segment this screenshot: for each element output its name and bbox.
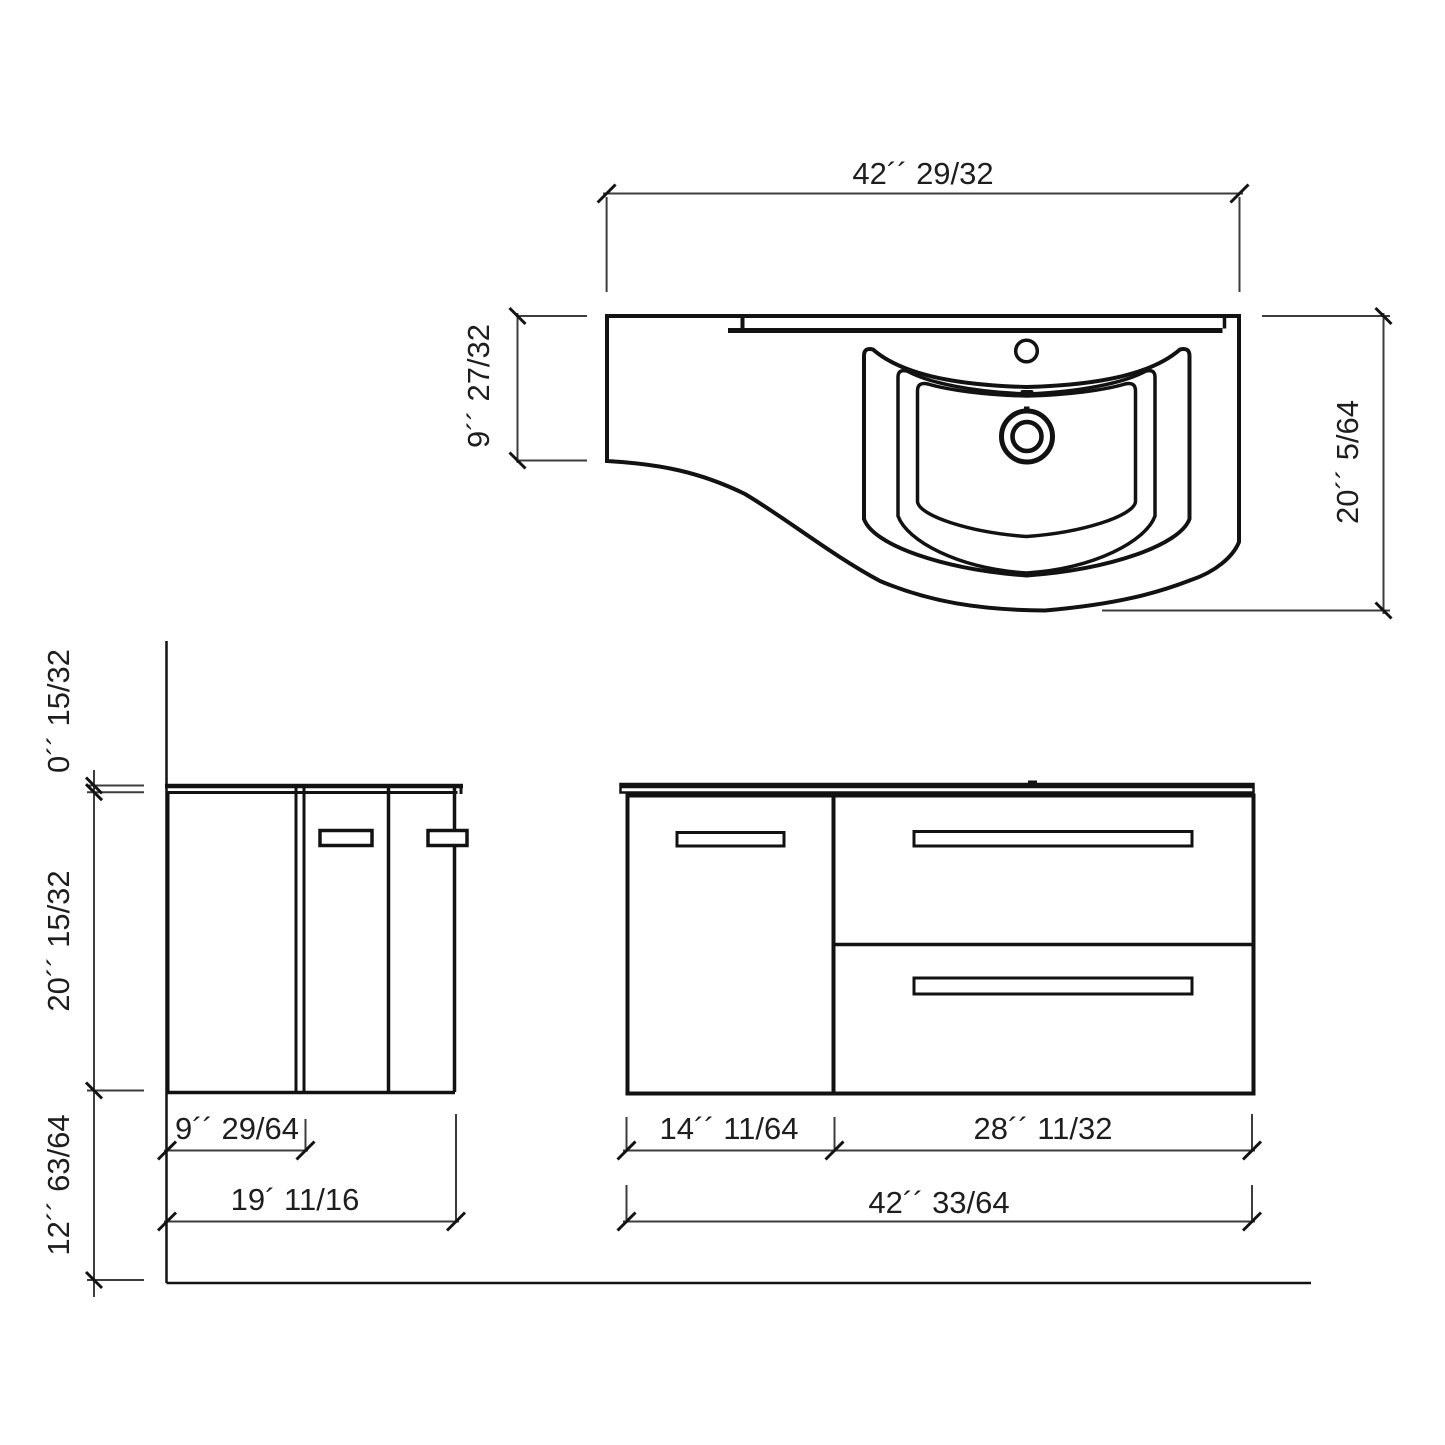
svg-text:12´´ 63/64: 12´´ 63/64 bbox=[41, 1114, 76, 1255]
svg-text:0´´ 15/32: 0´´ 15/32 bbox=[41, 649, 76, 773]
svg-text:19´ 11/16: 19´ 11/16 bbox=[231, 1182, 360, 1217]
svg-text:20´´ 15/32: 20´´ 15/32 bbox=[41, 870, 76, 1011]
svg-text:9´´ 27/32: 9´´ 27/32 bbox=[461, 324, 496, 448]
svg-text:9´´ 29/64: 9´´ 29/64 bbox=[175, 1111, 299, 1146]
svg-text:42´´ 29/32: 42´´ 29/32 bbox=[852, 156, 993, 191]
svg-text:42´´ 33/64: 42´´ 33/64 bbox=[868, 1185, 1009, 1220]
svg-text:20´´ 5/64: 20´´ 5/64 bbox=[1330, 400, 1365, 524]
svg-text:14´´ 11/64: 14´´ 11/64 bbox=[659, 1111, 798, 1146]
svg-text:28´´ 11/32: 28´´ 11/32 bbox=[973, 1111, 1112, 1146]
